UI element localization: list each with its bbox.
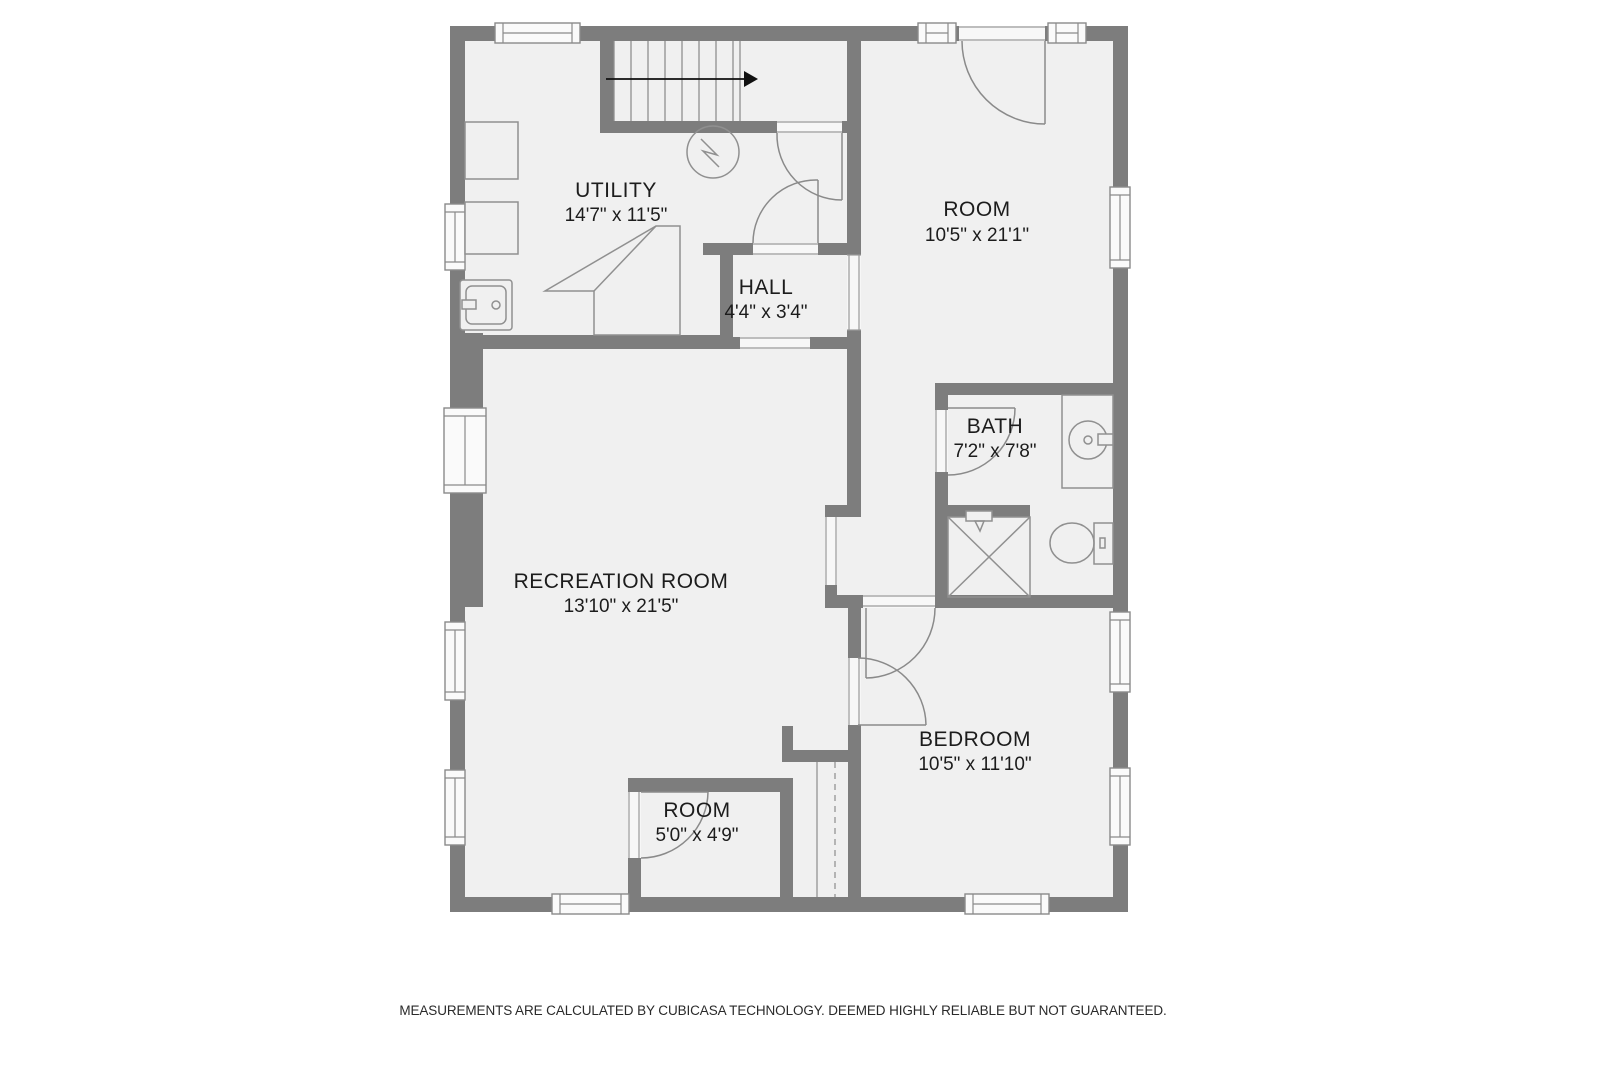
- window: [1048, 23, 1086, 43]
- room-dimensions: 7'2" x 7'8": [953, 441, 1036, 462]
- room-dimensions: 5'0" x 4'9": [655, 825, 738, 846]
- room-dimensions: 14'7" x 11'5": [565, 205, 668, 226]
- room-name: ROOM: [943, 198, 1010, 221]
- room-name: BEDROOM: [919, 728, 1031, 751]
- room-dimensions: 10'5" x 11'10": [918, 754, 1031, 775]
- room-name: BATH: [967, 415, 1023, 438]
- opening: [847, 255, 861, 330]
- window: [445, 622, 465, 700]
- floor-plan-page: UTILITY 14'7" x 11'5" ROOM 10'5" x 21'1"…: [0, 0, 1600, 1066]
- opening: [825, 517, 837, 585]
- room-name: ROOM: [663, 799, 730, 822]
- room-name: HALL: [739, 276, 794, 299]
- utility-sink: [460, 280, 512, 330]
- disclaimer-text: MEASUREMENTS ARE CALCULATED BY CUBICASA …: [399, 1003, 1166, 1018]
- room-name: UTILITY: [575, 179, 657, 202]
- window: [1110, 768, 1130, 845]
- room-dimensions: 13'10" x 21'5": [564, 596, 679, 617]
- window: [918, 23, 956, 43]
- room-name: RECREATION ROOM: [514, 570, 729, 593]
- appliance: [465, 122, 518, 179]
- window: [445, 204, 465, 270]
- window: [552, 894, 629, 914]
- window: [1110, 187, 1130, 268]
- window: [495, 23, 580, 43]
- room-dimensions: 10'5" x 21'1": [925, 225, 1029, 246]
- window: [965, 894, 1049, 914]
- window: [1110, 612, 1130, 692]
- opening: [740, 337, 810, 349]
- window: [444, 408, 486, 493]
- window: [445, 770, 465, 845]
- floor-plan-drawing: UTILITY 14'7" x 11'5" ROOM 10'5" x 21'1"…: [0, 0, 1600, 1066]
- floor-area: [455, 31, 1123, 907]
- room-dimensions: 4'4" x 3'4": [724, 302, 807, 323]
- appliance: [465, 202, 518, 254]
